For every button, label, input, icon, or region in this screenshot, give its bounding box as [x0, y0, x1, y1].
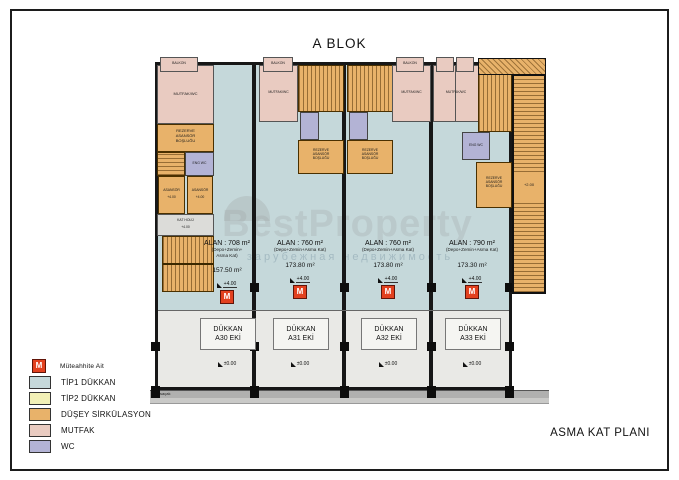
reserve-elevator-shaft: REZERVE ASANSÖR BOŞLUĞU: [298, 140, 344, 174]
elevator-level: +4.00: [159, 195, 184, 199]
block-title: A BLOK: [0, 36, 679, 51]
stair-block: [478, 66, 512, 132]
level-flag-icon: [378, 278, 383, 283]
shop-id: A31 EKİ: [288, 334, 314, 343]
plan-name: ASMA KAT PLANI: [550, 427, 650, 439]
level-flag-icon: [462, 278, 467, 283]
wc-room: ENG WC: [185, 152, 214, 176]
level-flag-icon: [379, 362, 384, 367]
landing-level: +2.00: [514, 183, 544, 188]
terrace-strip: [478, 58, 546, 75]
column: [427, 386, 436, 398]
contractor-marker-icon: M: [32, 359, 46, 373]
column: [505, 342, 514, 351]
external-stair: +2.00: [512, 74, 546, 294]
reserve-shaft-label: REZERVE ASANSÖR BOŞLUĞU: [158, 129, 213, 143]
shop-name: DÜKKAN: [374, 325, 403, 334]
stair-block: [298, 65, 344, 112]
column: [151, 342, 160, 351]
wc-room-label: ENG WC: [186, 161, 213, 165]
shop-name: DÜKKAN: [213, 325, 242, 334]
ground-level-marker: ±0.00: [344, 361, 432, 367]
unit-mezzanine-area: 173.80 m²: [344, 262, 432, 269]
shop-id: A33 EKİ: [460, 334, 486, 343]
legend-swatch: [29, 392, 51, 405]
unit-area-label: ALAN : 790 m²: [428, 240, 516, 247]
floor-hall-label: KAT HOLÜ: [158, 218, 213, 222]
mutfak-room-label: MUTFAK/WC: [158, 92, 213, 97]
contractor-marker-badge: M: [465, 285, 479, 299]
mutfak-room: MUTFAK/WC: [433, 65, 479, 122]
balcony-label: BALKON: [264, 61, 292, 65]
unit-composition: (Depo+Zemin+Asma Kat): [428, 247, 516, 253]
column: [340, 342, 349, 351]
shop-name: DÜKKAN: [286, 325, 315, 334]
upper-level-marker: +4.00: [428, 276, 516, 283]
shop-name: DÜKKAN: [458, 325, 487, 334]
mutfak-room: MUTFAK/WC: [392, 65, 431, 122]
unit-composition: (Depo+Zemin+Asma Kat): [344, 247, 432, 253]
wall-bottom: [155, 387, 512, 390]
level-flag-icon: [463, 362, 468, 367]
unit-a33: ALAN : 790 m² (Depo+Zemin+Asma Kat) 173.…: [428, 240, 516, 299]
reserve-elevator-shaft: REZERVE ASANSÖR BOŞLUĞU: [476, 162, 512, 208]
unit-mezzanine-area: 173.80 m²: [256, 262, 344, 269]
legend-swatch: [29, 440, 51, 453]
reserve-elevator-shaft: REZERVE ASANSÖR BOŞLUĞU: [157, 124, 214, 152]
level-flag-icon: [217, 283, 222, 288]
reserve-elevator-shaft: REZERVE ASANSÖR BOŞLUĞU: [347, 140, 393, 174]
floor-hall-level: +4.00: [158, 225, 213, 229]
wc-room: ENG WC: [462, 132, 490, 160]
balcony-label: BALKON: [397, 61, 423, 65]
unit-a31: ALAN : 760 m² (Depo+Zemin+Asma Kat) 173.…: [256, 240, 344, 299]
reserve-shaft-label: REZERVE ASANSÖR BOŞLUĞU: [477, 176, 511, 188]
column: [427, 342, 436, 351]
column: [250, 386, 259, 398]
level-flag-icon: [290, 278, 295, 283]
unit-composition: (Depo+Zemin+Asma Kat): [256, 247, 344, 253]
balcony-label: BALKON: [161, 61, 197, 65]
legend-label: MUTFAK: [61, 426, 95, 435]
legend-row: WC: [29, 438, 151, 454]
shop-id: A30 EKİ: [215, 334, 241, 343]
sidewalk-strip-2: [150, 398, 549, 404]
legend-row: TİP1 DÜKKAN: [29, 374, 151, 390]
elevator-label: ASANSÖR: [188, 188, 212, 192]
elevator-level: +4.00: [188, 195, 212, 199]
balcony-strip: BALKON: [396, 57, 424, 72]
legend-swatch: [29, 376, 51, 389]
legend-label: TİP1 DÜKKAN: [61, 378, 116, 387]
unit-mezzanine-area: 173.30 m²: [428, 262, 516, 269]
shop-label-box: DÜKKAN A30 EKİ: [200, 318, 256, 350]
legend-label: DÜŞEY SİRKÜLASYON: [61, 410, 151, 419]
mutfak-room-label: MUTFAK/WC: [393, 90, 430, 94]
wc-room: [349, 112, 368, 140]
column: [340, 386, 349, 398]
column: [151, 386, 160, 398]
unit-area-label: ALAN : 760 m²: [256, 240, 344, 247]
drawing-sheet: A BLOK ASMA KAT PLANI BestProperty заруб…: [0, 0, 679, 480]
reserve-shaft-label: REZERVE ASANSÖR BOŞLUĞU: [299, 148, 343, 160]
contractor-marker-badge: M: [293, 285, 307, 299]
upper-level-marker: +4.00: [256, 276, 344, 283]
legend: M Müteahhite Ait TİP1 DÜKKAN TİP2 DÜKKAN…: [29, 358, 151, 454]
ground-level-marker: ±0.00: [428, 361, 516, 367]
legend-label: Müteahhite Ait: [60, 363, 104, 370]
stair-block: [157, 152, 185, 176]
mutfak-room: MUTFAK/WC: [259, 65, 298, 122]
legend-label: TİP2 DÜKKAN: [61, 394, 116, 403]
unit-area-label: ALAN : 760 m²: [344, 240, 432, 247]
reserve-shaft-label: REZERVE ASANSÖR BOŞLUĞU: [348, 148, 392, 160]
elevator-room: ASANSÖR +4.00: [158, 176, 185, 214]
wc-room: [300, 112, 319, 140]
legend-swatch: [29, 408, 51, 421]
shop-label-box: DÜKKAN A33 EKİ: [445, 318, 501, 350]
balcony-strip: BALKON: [160, 57, 198, 72]
mutfak-room-label: MUTFAK/WC: [260, 90, 297, 94]
stair-landing: +2.00: [514, 172, 544, 202]
floor-hall: KAT HOLÜ +4.00: [157, 214, 214, 236]
balcony-strip: [436, 57, 454, 72]
legend-row-marker: M Müteahhite Ait: [29, 358, 151, 374]
column: [505, 386, 514, 398]
mutfak-room-label: MUTFAK/WC: [434, 90, 478, 94]
upper-level-marker: +4.00: [344, 276, 432, 283]
legend-swatch: [29, 424, 51, 437]
wc-room-label: ENG WC: [463, 143, 489, 147]
shop-label-box: DÜKKAN A31 EKİ: [273, 318, 329, 350]
elevator-room: ASANSÖR +4.00: [187, 176, 213, 214]
legend-label: WC: [61, 442, 75, 451]
contractor-marker-badge: M: [220, 290, 234, 304]
legend-row: TİP2 DÜKKAN: [29, 390, 151, 406]
level-flag-icon: [218, 362, 223, 367]
mezzanine-edge-line: [158, 310, 509, 311]
ground-level-marker: ±0.00: [256, 361, 344, 367]
shop-id: A32 EKİ: [376, 334, 402, 343]
legend-row: DÜŞEY SİRKÜLASYON: [29, 406, 151, 422]
mutfak-room: MUTFAK/WC: [157, 65, 214, 124]
legend-row: MUTFAK: [29, 422, 151, 438]
shop-label-box: DÜKKAN A32 EKİ: [361, 318, 417, 350]
stair-block: [347, 65, 393, 112]
eave-label: saçak: [160, 391, 170, 396]
balcony-strip: [456, 57, 474, 72]
level-flag-icon: [291, 362, 296, 367]
unit-a32: ALAN : 760 m² (Depo+Zemin+Asma Kat) 173.…: [344, 240, 432, 299]
balcony-strip: BALKON: [263, 57, 293, 72]
contractor-marker-badge: M: [381, 285, 395, 299]
elevator-label: ASANSÖR: [159, 188, 184, 192]
